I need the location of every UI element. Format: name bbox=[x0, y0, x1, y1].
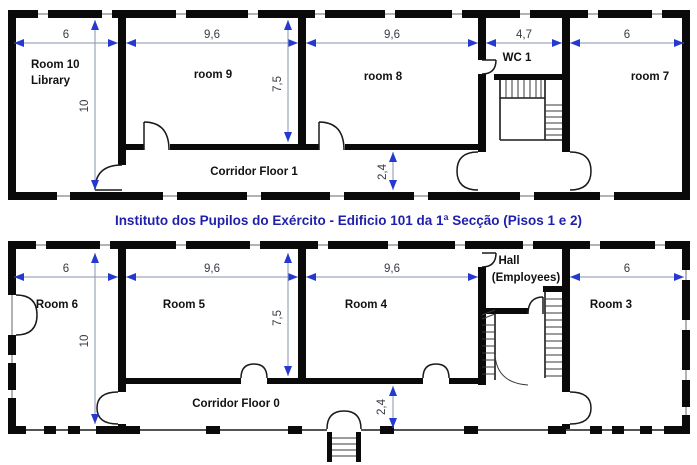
double-door-icon-room4 bbox=[423, 364, 449, 378]
dim-room5-width: 9,6 bbox=[204, 263, 220, 275]
double-door-icon-room6-exterior bbox=[16, 295, 37, 335]
floor-0-plan: 6 9,6 9,6 6 10 7,5 2,4 Room 6 Room 5 Roo… bbox=[0, 237, 697, 465]
double-door-icon-room5 bbox=[241, 364, 267, 378]
dimension-lines bbox=[14, 20, 684, 190]
dim-room8-width: 9,6 bbox=[384, 29, 400, 41]
room-label-room10: Room 10 bbox=[31, 59, 80, 71]
door-icon-hall-stairs bbox=[528, 297, 543, 314]
door-icon-room9 bbox=[144, 122, 169, 150]
room-label-corridor-floor0: Corridor Floor 0 bbox=[192, 398, 280, 410]
floor-plan-page: 6 9,6 9,6 4,7 6 10 7,5 2,4 Room 10 Libra… bbox=[0, 0, 697, 465]
dim-height: 10 bbox=[79, 100, 91, 113]
dim-left-width: 6 bbox=[63, 263, 69, 275]
dim-corridor-depth: 2,4 bbox=[377, 163, 389, 180]
dim-height: 10 bbox=[79, 335, 91, 348]
dim-right-width: 6 bbox=[624, 263, 630, 275]
dim-left-width: 6 bbox=[63, 29, 69, 41]
double-door-icon-room6-corridor bbox=[97, 392, 118, 424]
double-door-icon-room3 bbox=[570, 392, 591, 424]
double-door-icon-corridor-lobby bbox=[457, 152, 478, 190]
stairs-icon bbox=[500, 80, 562, 140]
room-label-corridor-floor1: Corridor Floor 1 bbox=[210, 166, 298, 178]
room-label-room3: Room 3 bbox=[590, 299, 632, 311]
exterior-walls bbox=[8, 241, 690, 434]
dim-room-depth: 7,5 bbox=[272, 310, 284, 326]
room-label-hall-employees: (Employees) bbox=[492, 272, 561, 284]
dim-room-depth: 7,5 bbox=[272, 76, 284, 92]
door-icon-hall-top bbox=[482, 253, 496, 267]
door-icon-room10 bbox=[95, 165, 122, 190]
double-door-icon-lobby-room7 bbox=[570, 152, 591, 190]
door-icon-room8 bbox=[319, 122, 344, 150]
room-label-room7: room 7 bbox=[631, 71, 669, 83]
room-label-room8: room 8 bbox=[364, 71, 403, 83]
room-label-hall: Hall bbox=[498, 255, 519, 267]
dim-room9-width: 9,6 bbox=[204, 29, 220, 41]
entrance-steps-icon bbox=[327, 432, 361, 462]
room-label-room5: Room 5 bbox=[163, 299, 206, 311]
dim-wc-width: 4,7 bbox=[516, 29, 532, 41]
room-label-wc1: WC 1 bbox=[503, 52, 532, 64]
double-door-icon-main-entrance bbox=[327, 411, 361, 429]
room-label-room6: Room 6 bbox=[36, 299, 78, 311]
stairs-icon-right bbox=[545, 292, 562, 378]
room-label-room4: Room 4 bbox=[345, 299, 388, 311]
exterior-walls bbox=[8, 10, 690, 200]
dim-corridor-depth: 2,4 bbox=[376, 398, 388, 415]
dim-room4-width: 9,6 bbox=[384, 263, 400, 275]
window-lines bbox=[8, 241, 690, 433]
stairs-icon-left bbox=[482, 310, 528, 385]
room-label-library: Library bbox=[31, 75, 71, 87]
room-label-room9: room 9 bbox=[194, 69, 232, 81]
floor-1-plan: 6 9,6 9,6 4,7 6 10 7,5 2,4 Room 10 Libra… bbox=[0, 0, 697, 206]
dim-right-width: 6 bbox=[624, 29, 630, 41]
door-icon-wc1 bbox=[482, 60, 496, 74]
window-lines bbox=[8, 14, 690, 196]
dimension-lines bbox=[14, 253, 684, 428]
plan-title: Instituto dos Pupilos do Exército - Edif… bbox=[0, 206, 697, 237]
